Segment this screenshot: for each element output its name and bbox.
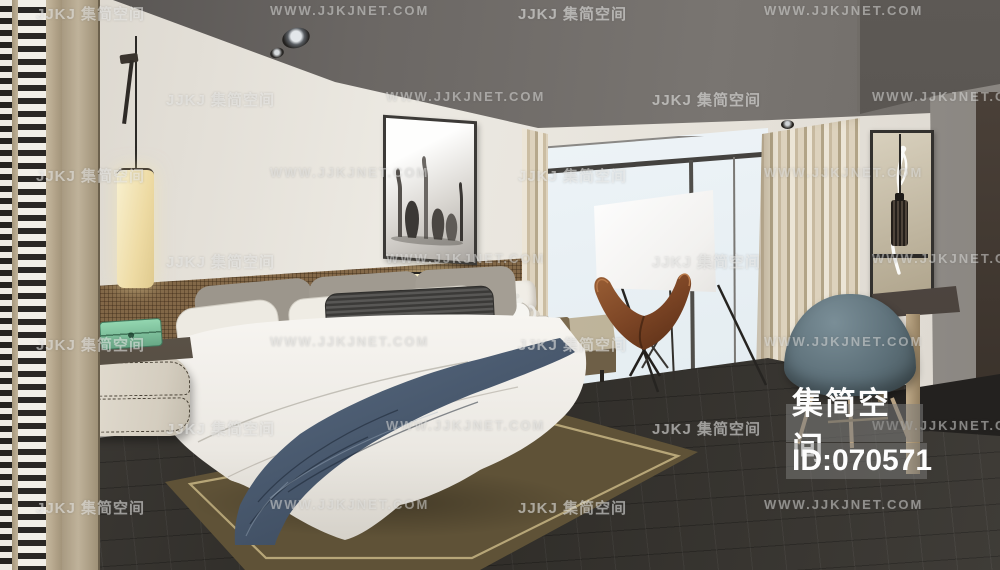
watermark-brand: JJKJ 集简空间	[166, 89, 275, 110]
watermark-site-url: WWW.JJKJNET.COM	[764, 497, 923, 512]
watermark-brand: JJKJ 集简空间	[518, 497, 627, 518]
watermark-site-url: WWW.JJKJNET.COM	[270, 334, 429, 349]
watermark-brand: JJKJ 集简空间	[166, 251, 275, 272]
watermark-site-url: WWW.JJKJNET.COM	[386, 89, 545, 104]
watermark-brand: JJKJ 集简空间	[36, 497, 145, 518]
watermark-site-url: WWW.JJKJNET.COM	[872, 89, 1000, 104]
watermark-brand: JJKJ 集简空间	[36, 165, 145, 186]
watermark-site-url: WWW.JJKJNET.COM	[764, 334, 923, 349]
watermark-site-url: WWW.JJKJNET.COM	[270, 497, 429, 512]
watermark-site-url: WWW.JJKJNET.COM	[764, 3, 923, 18]
watermark-site-url: WWW.JJKJNET.COM	[386, 251, 545, 266]
watermark-site-url: WWW.JJKJNET.COM	[764, 165, 923, 180]
watermark-site-url: WWW.JJKJNET.COM	[386, 418, 545, 433]
id-badge-text: ID:070571	[792, 444, 932, 478]
watermark-layer: JJKJ 集简空间WWW.JJKJNET.COMJJKJ 集简空间WWW.JJK…	[0, 0, 1000, 570]
id-badge: ID:070571	[786, 443, 927, 479]
watermark-site-url: WWW.JJKJNET.COM	[872, 251, 1000, 266]
watermark-brand: JJKJ 集简空间	[166, 418, 275, 439]
watermark-brand: JJKJ 集简空间	[518, 165, 627, 186]
watermark-brand: JJKJ 集简空间	[652, 251, 761, 272]
watermark-brand: JJKJ 集简空间	[36, 3, 145, 24]
watermark-site-url: WWW.JJKJNET.COM	[270, 3, 429, 18]
brand-badge: 集简空间	[786, 404, 923, 442]
watermark-brand: JJKJ 集简空间	[518, 334, 627, 355]
watermark-site-url: WWW.JJKJNET.COM	[270, 165, 429, 180]
watermark-brand: JJKJ 集简空间	[518, 3, 627, 24]
bedroom-render: JJKJ 集简空间WWW.JJKJNET.COMJJKJ 集简空间WWW.JJK…	[0, 0, 1000, 570]
watermark-brand: JJKJ 集简空间	[652, 89, 761, 110]
watermark-brand: JJKJ 集简空间	[652, 418, 761, 439]
watermark-brand: JJKJ 集简空间	[36, 334, 145, 355]
